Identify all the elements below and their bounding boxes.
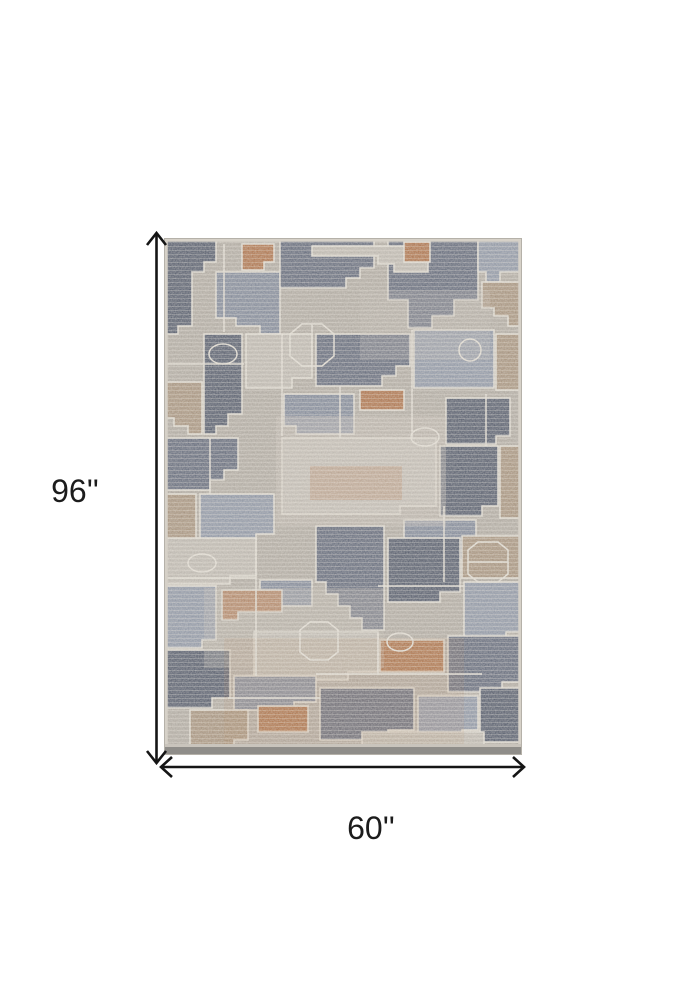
rug-image	[164, 238, 522, 755]
rug-grain-dark	[164, 238, 522, 755]
width-dimension-label: 60''	[316, 810, 426, 846]
width-dimension-arrow	[149, 752, 535, 782]
rug-pattern-graphic	[164, 238, 522, 755]
rug-bottom-highlight	[164, 744, 522, 747]
height-dimension-arrow	[143, 227, 171, 769]
height-dimension-label: 96''	[26, 473, 124, 509]
product-dimension-image: 96'' 60''	[0, 0, 686, 1000]
